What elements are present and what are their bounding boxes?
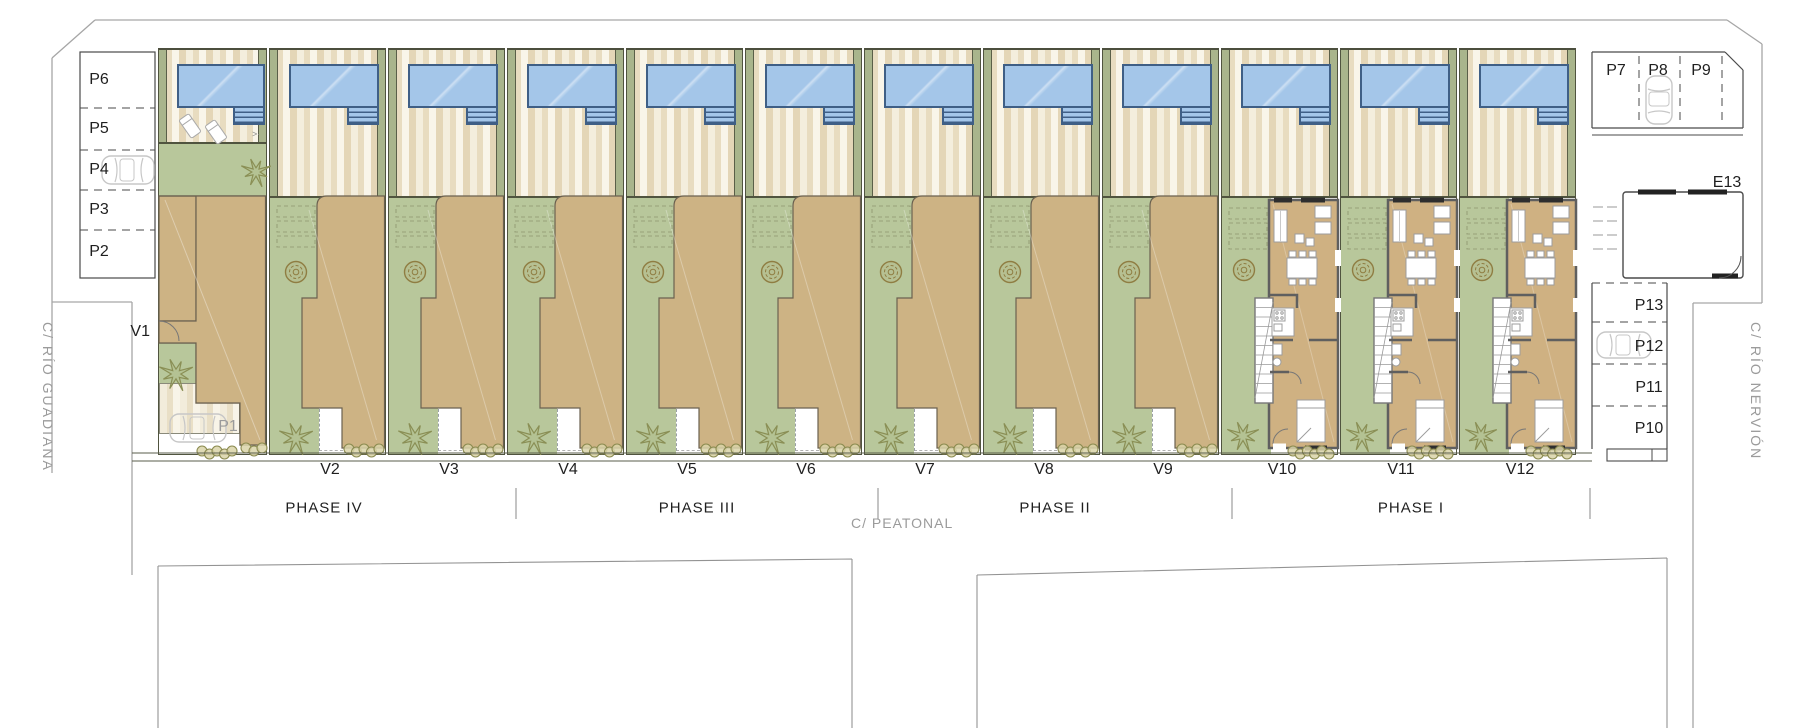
villa-plot-v1 [158, 48, 267, 455]
swimming-pool [1241, 64, 1331, 108]
swimming-pool [177, 64, 265, 108]
label-p11: P11 [1635, 379, 1662, 397]
pool-deck [1103, 50, 1218, 198]
swimming-pool [884, 64, 974, 108]
label-phase-1: PHASE I [1378, 500, 1444, 517]
label-v6: V6 [796, 461, 816, 479]
swimming-pool [527, 64, 617, 108]
pool-deck [984, 50, 1099, 198]
label-e13: E13 [1713, 174, 1741, 192]
pool-deck [746, 50, 861, 198]
swimming-pool [1122, 64, 1212, 108]
garden-strip [1103, 198, 1152, 454]
villa-plot-v9 [1102, 48, 1219, 455]
deck-side-band [984, 50, 992, 196]
deck-side-band [270, 50, 278, 196]
pool-steps [466, 108, 498, 125]
garden-strip [389, 198, 438, 454]
pool-steps [1537, 108, 1569, 125]
label-p3: P3 [89, 201, 109, 219]
garden-strip [865, 198, 914, 454]
villa-plot-v4 [507, 48, 624, 455]
label-phase-2: PHASE II [1019, 500, 1090, 517]
car-icon [102, 156, 154, 184]
pool-deck [1460, 50, 1575, 198]
pool-steps [1418, 108, 1450, 125]
pool-steps [347, 108, 379, 125]
swimming-pool [765, 64, 855, 108]
entry-walkway [438, 409, 462, 451]
garden-strip [270, 198, 319, 454]
pool-steps [823, 108, 855, 125]
label-v5: V5 [677, 461, 697, 479]
label-v8: V8 [1034, 461, 1054, 479]
label-v12: V12 [1506, 461, 1534, 479]
swimming-pool [408, 64, 498, 108]
garden-strip [746, 198, 795, 454]
car-icon [1646, 76, 1672, 124]
pool-steps [585, 108, 617, 125]
label-p8: P8 [1648, 62, 1668, 80]
label-p10: P10 [1635, 420, 1663, 438]
garden-strip [1460, 198, 1509, 454]
deck-side-band [1460, 50, 1468, 196]
label-p4: P4 [89, 161, 109, 179]
label-phase-4: PHASE IV [285, 500, 362, 517]
street-label-right: C/ RÍO NERVIÓN [1748, 322, 1764, 460]
label-v7: V7 [915, 461, 935, 479]
pool-steps [1299, 108, 1331, 125]
entry-walkway [795, 409, 819, 451]
street-label-pedestrian: C/ PEATONAL [851, 515, 953, 531]
label-p2: P2 [89, 243, 109, 261]
site-plan: C/ RÍO GUADIANA C/ RÍO NERVIÓN C/ PEATON… [0, 0, 1816, 728]
entry-door [159, 301, 197, 323]
pool-deck [389, 50, 504, 198]
villa-plot-v11 [1340, 48, 1457, 455]
garden-strip [508, 198, 557, 454]
swimming-pool [289, 64, 379, 108]
deck-side-band [865, 50, 873, 196]
neighbor-blocks [158, 558, 1667, 728]
villa-plot-v12 [1459, 48, 1576, 455]
pool-deck [865, 50, 980, 198]
label-p6: P6 [89, 71, 109, 89]
swimming-pool [1360, 64, 1450, 108]
pool-steps [233, 108, 265, 125]
pool-deck [1341, 50, 1456, 198]
garden-strip [1341, 198, 1390, 454]
garden-strip [627, 198, 676, 454]
swimming-pool [1479, 64, 1569, 108]
label-v4: V4 [558, 461, 578, 479]
entry-walkway [319, 409, 343, 451]
villa-plot-v5 [626, 48, 743, 455]
entry-walkway [557, 409, 581, 451]
pool-steps [1180, 108, 1212, 125]
villa-plot-v2 [269, 48, 386, 455]
villa-plot-v10 [1221, 48, 1338, 455]
label-v1: V1 [130, 323, 150, 341]
garden-band [159, 144, 266, 198]
villa-plot-v6 [745, 48, 862, 455]
deck-side-band [1222, 50, 1230, 196]
label-p5: P5 [89, 120, 109, 138]
pool-steps [1061, 108, 1093, 125]
garden-strip [1222, 198, 1271, 454]
label-p12: P12 [1635, 338, 1663, 356]
deck-side-band [159, 50, 167, 142]
label-v9: V9 [1153, 461, 1173, 479]
pool-deck [159, 50, 266, 144]
label-phase-3: PHASE III [659, 500, 736, 517]
label-v10: V10 [1268, 461, 1296, 479]
swimming-pool [646, 64, 736, 108]
pool-deck [270, 50, 385, 198]
pool-deck [1222, 50, 1337, 198]
pool-steps [942, 108, 974, 125]
label-v2: V2 [320, 461, 340, 479]
deck-side-band [1103, 50, 1111, 196]
label-p9: P9 [1691, 62, 1711, 80]
label-v3: V3 [439, 461, 459, 479]
entry-walkway [676, 409, 700, 451]
label-p1: P1 [218, 418, 238, 436]
deck-side-band [1341, 50, 1349, 196]
villa-plot-v8 [983, 48, 1100, 455]
entry-walkway [914, 409, 938, 451]
deck-side-band [389, 50, 397, 196]
street-label-left: C/ RÍO GUADIANA [40, 322, 56, 472]
entry-walkway [1033, 409, 1057, 451]
pool-steps [704, 108, 736, 125]
deck-side-band [508, 50, 516, 196]
villa-plot-v7 [864, 48, 981, 455]
label-p13: P13 [1635, 297, 1663, 315]
pool-deck [627, 50, 742, 198]
entry-walkway [1152, 409, 1176, 451]
villa-plot-v3 [388, 48, 505, 455]
garden-strip [984, 198, 1033, 454]
label-v11: V11 [1387, 461, 1414, 479]
swimming-pool [1003, 64, 1093, 108]
utility-building-e13 [1593, 190, 1743, 279]
deck-side-band [627, 50, 635, 196]
pool-deck [508, 50, 623, 198]
garden-path [159, 323, 197, 383]
label-p7: P7 [1606, 62, 1626, 80]
deck-side-band [746, 50, 754, 196]
